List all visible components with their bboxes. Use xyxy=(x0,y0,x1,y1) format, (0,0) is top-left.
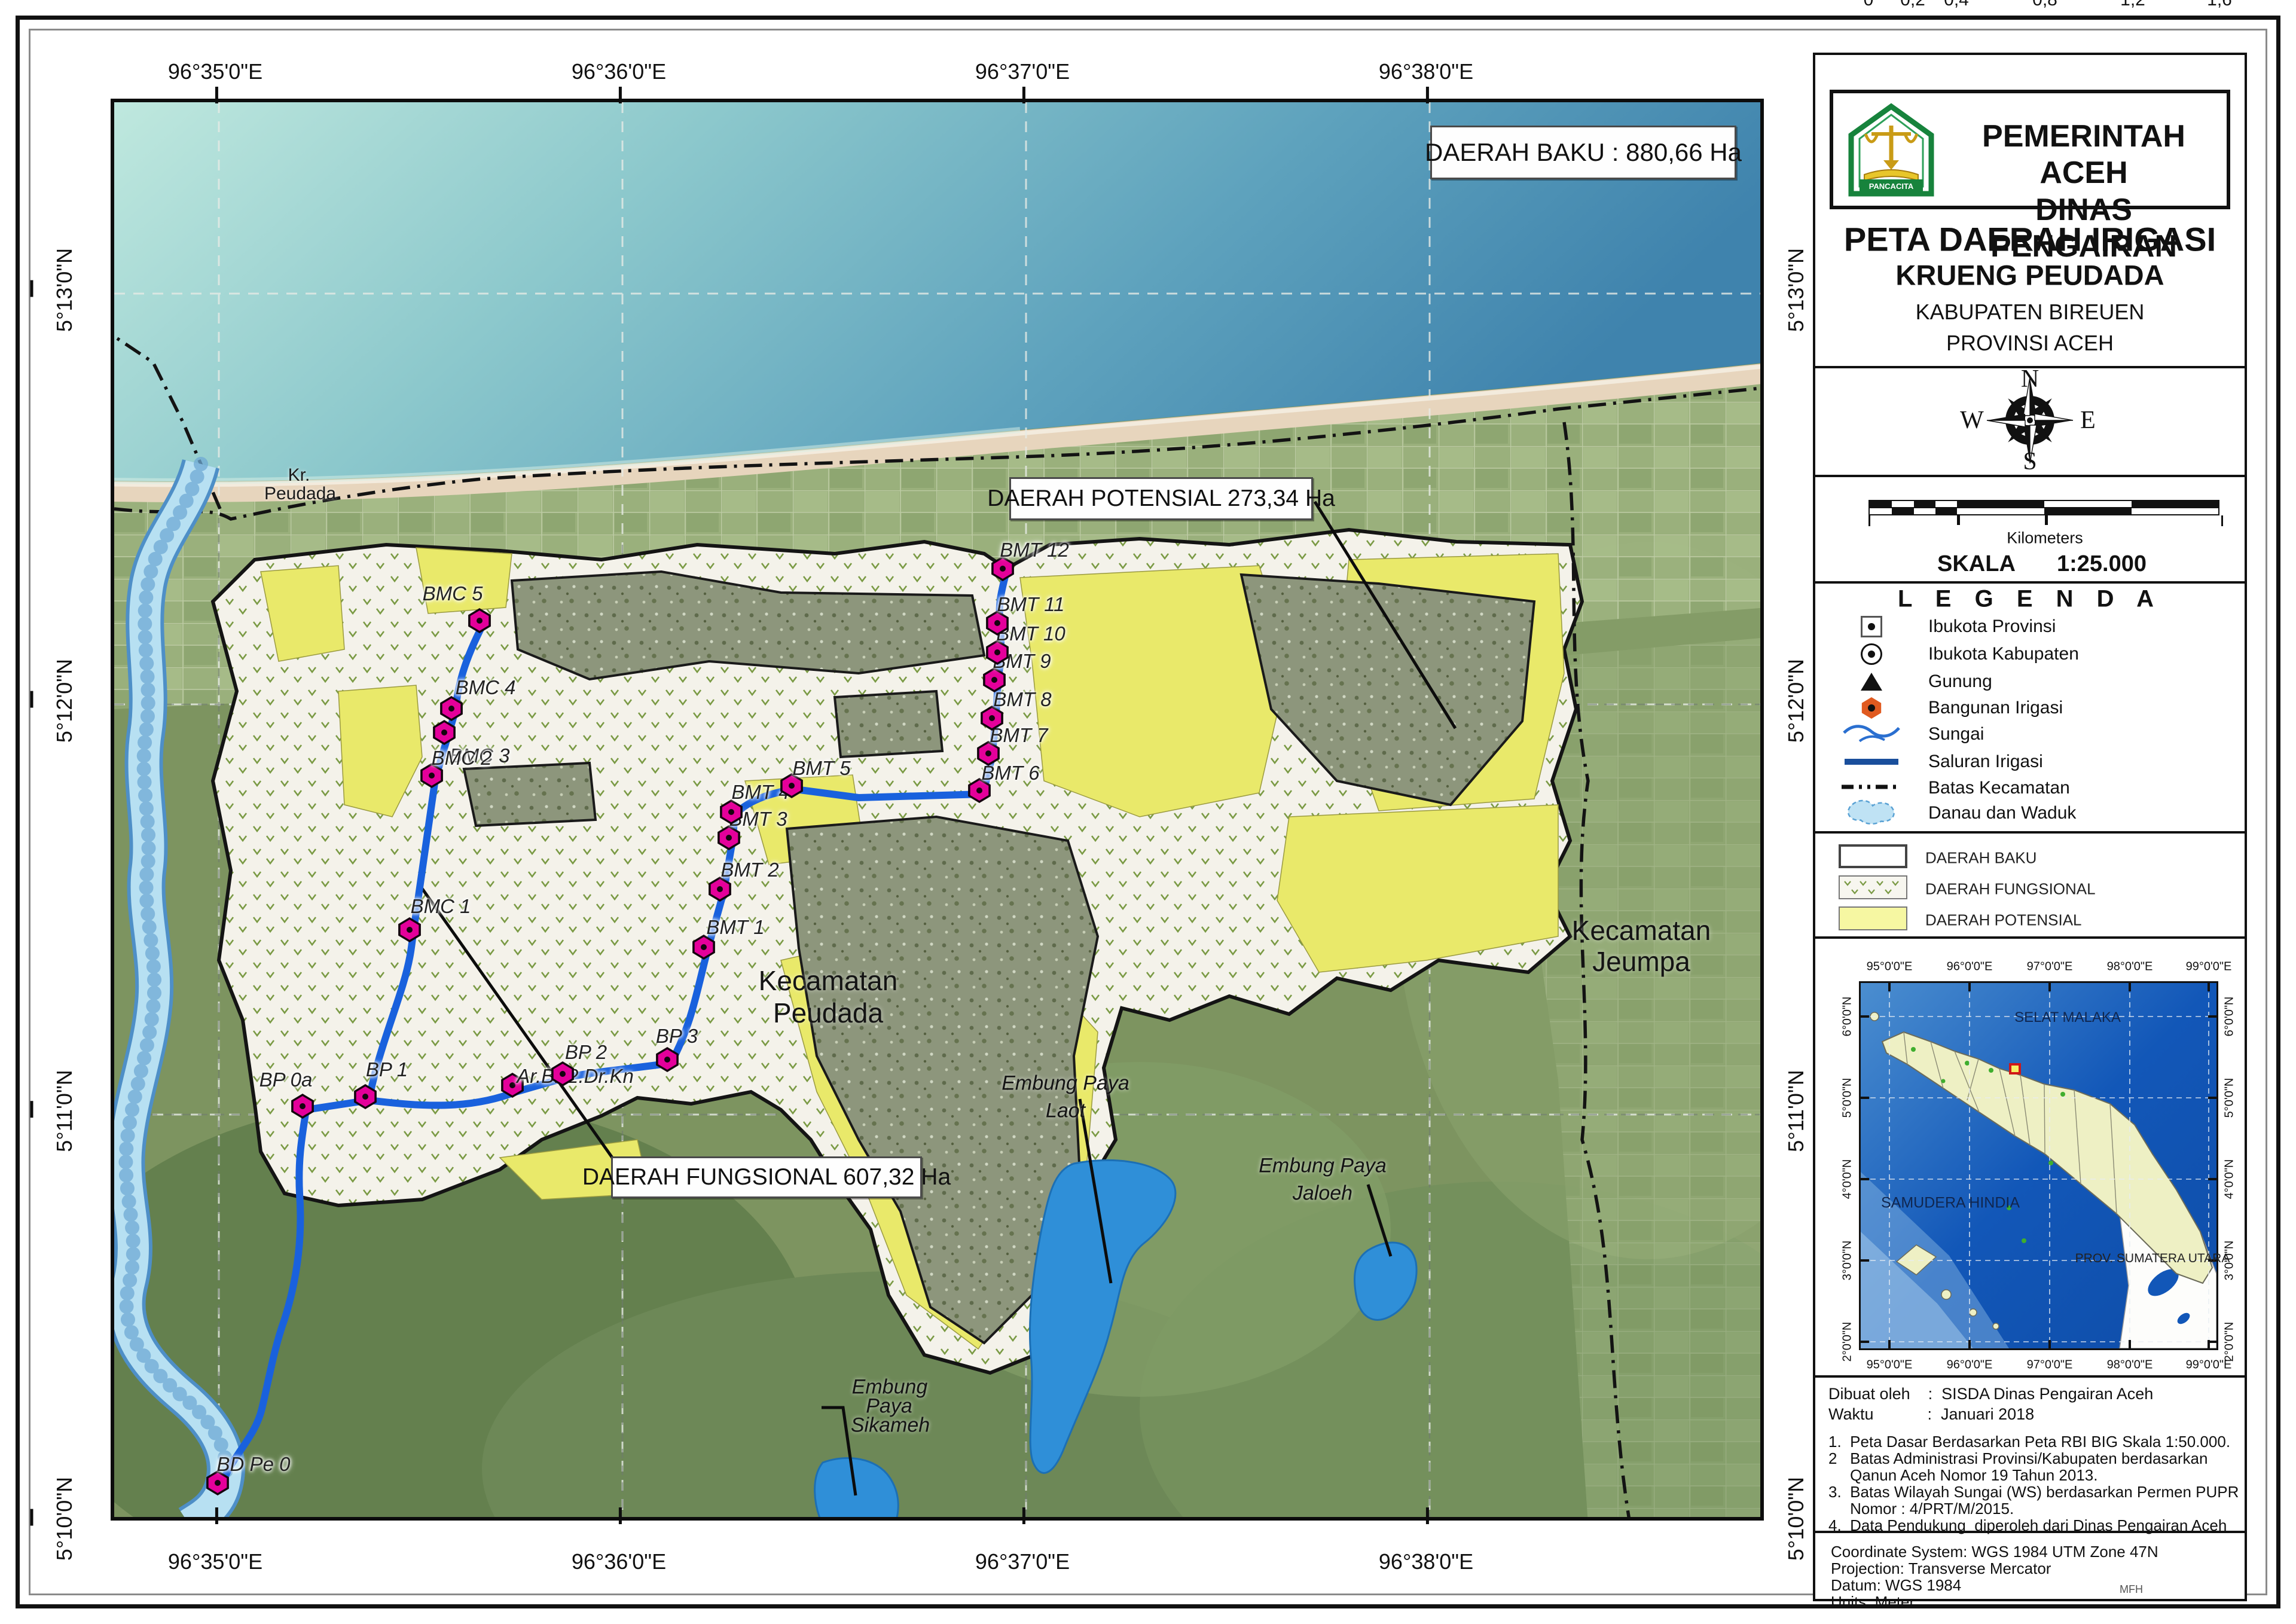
inset-lat-label: 5°0'0"N xyxy=(1841,1078,1855,1118)
legend-item-sungai: Sungai xyxy=(1839,721,2227,747)
logo-banner-text: PANCACITA xyxy=(1869,182,1914,191)
map-sheet: DAERAH BAKU : 880,66 Ha DAERAH POTENSIAL… xyxy=(0,0,2296,1624)
map-base-art xyxy=(114,102,1764,1521)
inset-lon-label: 96°0'0"E xyxy=(1947,1359,1993,1372)
inset-lon-label: 95°0'0"E xyxy=(1867,1359,1913,1372)
swatch-daerah-fungsional: DAERAH FUNGSIONAL xyxy=(1839,875,2227,903)
saluran-irigasi-icon xyxy=(1845,759,1898,765)
note-line: Qanun Aceh Nomor 19 Tahun 2013. xyxy=(1828,1466,2098,1485)
inset-lat-label: 2°0'0"N xyxy=(1841,1322,1855,1362)
sungai-icon xyxy=(1842,720,1901,749)
compass-w: W xyxy=(1960,406,1984,435)
legend-item-ibukota-provinsi: Ibukota Provinsi xyxy=(1839,613,2227,640)
panel-divider-4 xyxy=(1813,831,2247,834)
scalebar-number: 1,2 xyxy=(2120,0,2145,10)
scalebar-number: 1,6 xyxy=(2207,0,2232,10)
legend-item-gunung: Gunung xyxy=(1839,668,2227,695)
coord-line: Datum: WGS 1984 xyxy=(1831,1576,1961,1595)
daerah-baku-swatch xyxy=(1839,844,1907,868)
note-line: 1. Peta Dasar Berdasarkan Peta RBI BIG S… xyxy=(1828,1433,2230,1451)
scalebar-number: 0,2 xyxy=(1900,0,1925,10)
inset-locator-map[interactable] xyxy=(1859,981,2218,1350)
swatch-daerah-baku: DAERAH BAKU xyxy=(1839,844,2227,872)
legend-title: L E G E N D A xyxy=(1898,586,2162,613)
scalebar-number: 0,4 xyxy=(1944,0,1969,10)
selat-malaka-label: SELAT MALAKA xyxy=(2014,1009,2121,1026)
panel-divider-6 xyxy=(1813,1375,2247,1378)
panel-divider-2 xyxy=(1813,475,2247,477)
daerah-fungsional-swatch xyxy=(1839,875,1907,899)
panel-divider-7 xyxy=(1813,1531,2247,1533)
gunung-icon xyxy=(1861,673,1882,691)
provinsi-line: PROVINSI ACEH xyxy=(1946,331,2114,356)
skala-label: SKALA xyxy=(1937,551,2016,577)
note-line: Nomor : 4/PRT/M/2015. xyxy=(1828,1500,2014,1518)
panel-divider-5 xyxy=(1813,936,2247,939)
skala-value: 1:25.000 xyxy=(2057,551,2147,577)
compass-s: S xyxy=(2023,447,2037,476)
legend-item-saluran-irigasi: Saluran Irigasi xyxy=(1839,749,2227,775)
legend-item-ibukota-kabupaten: Ibukota Kabupaten xyxy=(1839,641,2227,667)
inset-lon-label: 99°0'0"E xyxy=(2186,960,2232,974)
note-line: 2 Batas Administrasi Provinsi/Kabupaten … xyxy=(1828,1449,2208,1468)
corner-mark: MFH xyxy=(2120,1583,2143,1596)
scalebar-number: 0,8 xyxy=(2032,0,2057,10)
inset-lat-label: 3°0'0"N xyxy=(1841,1241,1855,1281)
legend-item-danau-waduk: Danau dan Waduk xyxy=(1839,800,2227,826)
compass-e: E xyxy=(2080,406,2096,435)
danau-waduk-icon xyxy=(1844,798,1899,829)
note-line: 3. Batas Wilayah Sungai (WS) berdasarkan… xyxy=(1828,1483,2239,1501)
location-marker xyxy=(2010,1064,2020,1073)
inset-lon-label: 96°0'0"E xyxy=(1947,960,1993,974)
main-map[interactable] xyxy=(111,99,1764,1521)
scalebar xyxy=(1868,500,2219,515)
scalebar-end-ticks xyxy=(1868,515,2223,526)
scalebar-unit: Kilometers xyxy=(2007,529,2083,548)
inset-lon-label: 97°0'0"E xyxy=(2027,1359,2073,1372)
inset-lon-label: 98°0'0"E xyxy=(2107,1359,2153,1372)
map-title: PETA DAERAH IRIGASI xyxy=(1844,220,2216,259)
ibukota-kabupaten-icon xyxy=(1861,643,1882,665)
agency-line1: PEMERINTAH ACEH xyxy=(1943,118,2224,192)
inset-lat-label: 6°0'0"N xyxy=(2223,997,2237,1037)
inset-lon-label: 97°0'0"E xyxy=(2027,960,2073,974)
prov-sumatera-utara-label: PROV. SUMATERA UTARA xyxy=(2075,1251,2230,1266)
samudera-hindia-label: SAMUDERA HINDIA xyxy=(1881,1195,2020,1212)
bangunan-irigasi-icon xyxy=(1861,697,1882,719)
pemerintah-aceh-logo: PANCACITA xyxy=(1846,103,1936,202)
swatch-daerah-potensial: DAERAH POTENSIAL xyxy=(1839,906,2227,934)
ibukota-provinsi-icon xyxy=(1861,616,1882,637)
coord-line: Projection: Transverse Mercator xyxy=(1831,1559,2051,1578)
inset-lat-label: 2°0'0"N xyxy=(2223,1322,2237,1362)
inset-lat-label: 3°0'0"N xyxy=(2223,1241,2237,1281)
daerah-potensial-swatch xyxy=(1839,906,1907,930)
batas-kecamatan-icon xyxy=(1842,783,1901,793)
panel-divider-3 xyxy=(1813,581,2247,584)
time-line: Waktu : Januari 2018 xyxy=(1828,1405,2034,1424)
compass-n: N xyxy=(2021,365,2039,393)
inset-lon-label: 98°0'0"E xyxy=(2107,960,2153,974)
kabupaten-line: KABUPATEN BIREUEN xyxy=(1916,300,2145,325)
coord-line: Coordinate System: WGS 1984 UTM Zone 47N xyxy=(1831,1543,2158,1561)
made-by-line: Dibuat oleh : SISDA Dinas Pengairan Aceh xyxy=(1828,1385,2153,1403)
inset-lat-label: 4°0'0"N xyxy=(1841,1159,1855,1199)
map-subtitle: KRUENG PEUDADA xyxy=(1895,259,2164,292)
inset-lon-label: 95°0'0"E xyxy=(1867,960,1913,974)
inset-lat-label: 5°0'0"N xyxy=(2223,1078,2237,1118)
legend-item-bangunan-irigasi: Bangunan Irigasi xyxy=(1839,695,2227,721)
inset-lat-label: 4°0'0"N xyxy=(2223,1159,2237,1199)
scalebar-number: 0 xyxy=(1864,0,1874,10)
inset-lat-label: 6°0'0"N xyxy=(1841,997,1855,1037)
coord-line: Units: Meter xyxy=(1831,1593,1915,1611)
